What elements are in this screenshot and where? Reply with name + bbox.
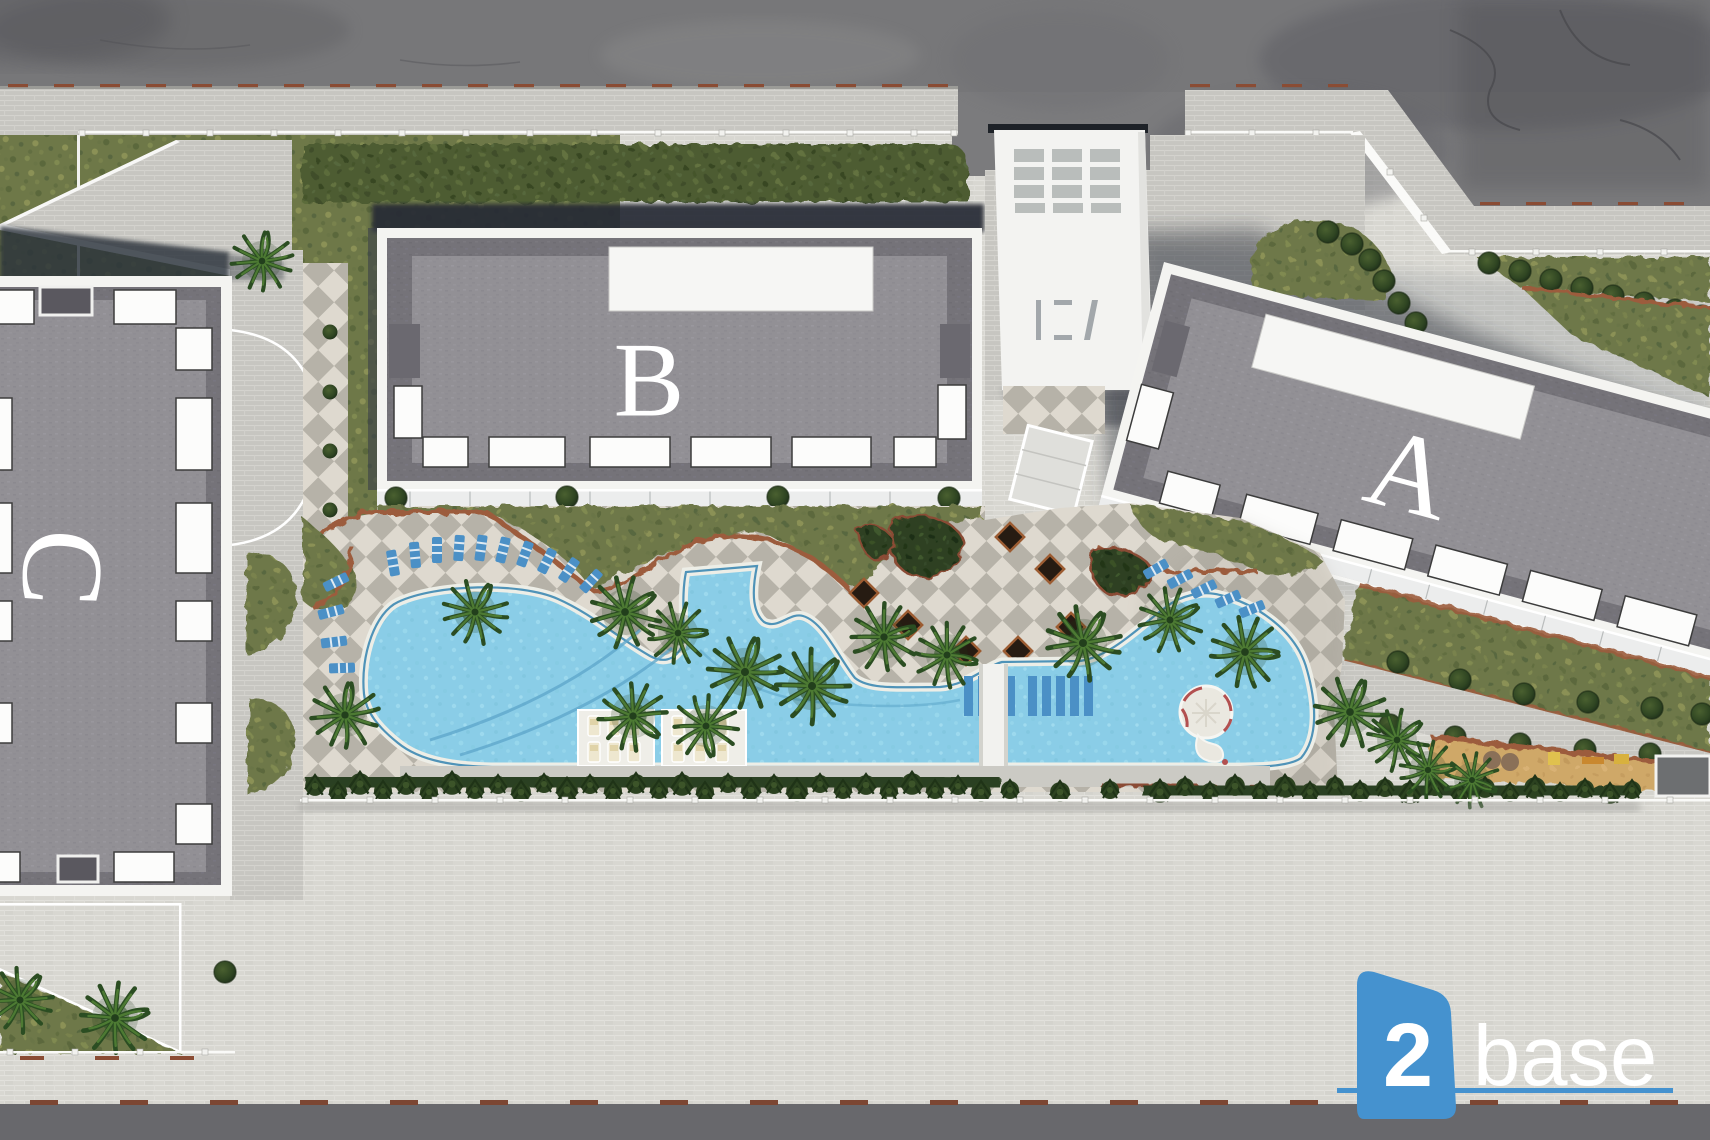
svg-text:2: 2 [1383,1006,1433,1106]
svg-text:B: B [614,322,685,439]
svg-text:C: C [0,526,128,610]
svg-text:base: base [1473,1009,1657,1104]
